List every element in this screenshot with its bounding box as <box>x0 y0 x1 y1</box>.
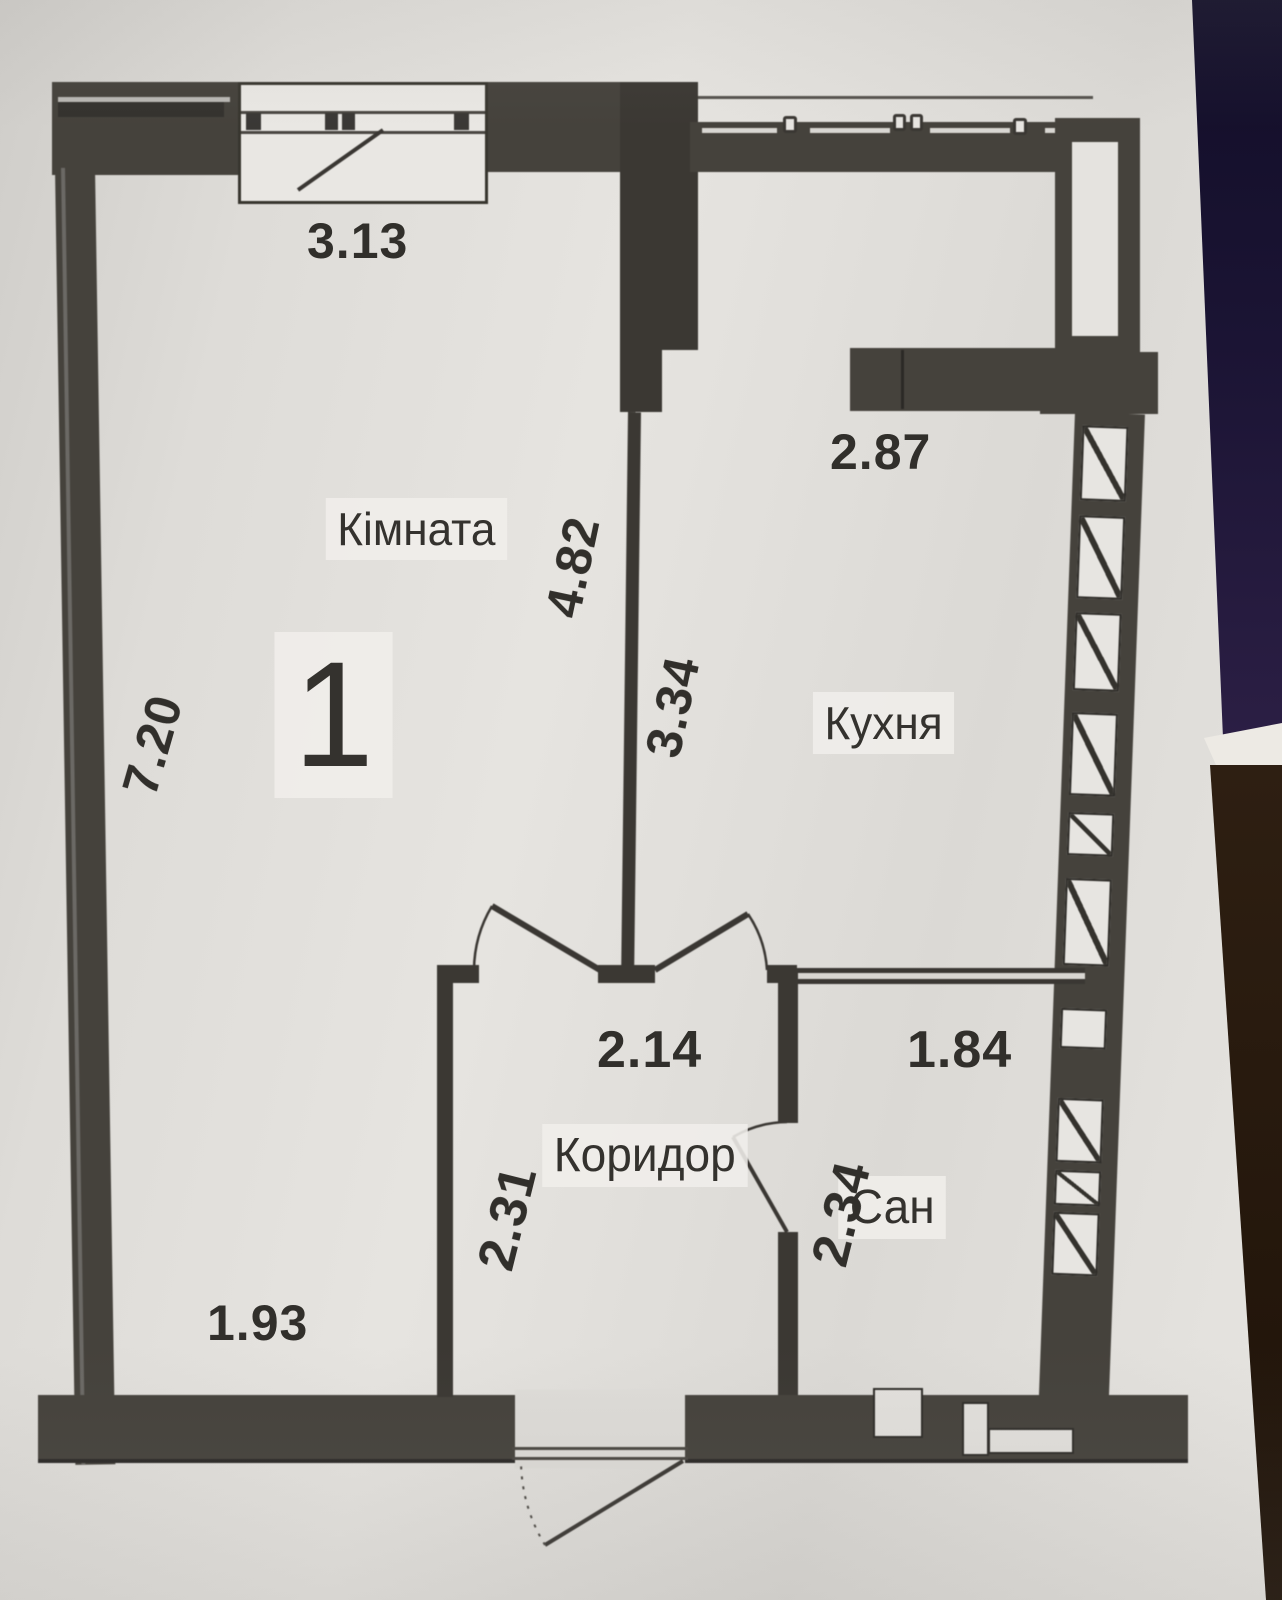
vent-window <box>1069 712 1118 797</box>
corridor-top-wall-left <box>437 965 479 983</box>
room-label-koridor: Коридор <box>542 1124 747 1187</box>
room-label-kuhnya: Кухня <box>813 692 954 754</box>
glazing-line <box>930 128 1010 133</box>
window-latch <box>246 113 261 130</box>
kitchen-window-outer-line <box>698 96 1093 99</box>
entrance-door-leaf <box>545 1461 683 1545</box>
shaft-opening <box>1060 1008 1107 1050</box>
kitchen-door-arc <box>748 914 767 970</box>
vent-window <box>1063 878 1112 967</box>
room-door-leaf <box>492 906 600 970</box>
wall-left-outer <box>55 167 115 1464</box>
dim-window-top: 3.13 <box>307 212 408 270</box>
shaft-cutout-slot-h <box>988 1428 1074 1454</box>
wall-top-left-stripe <box>58 102 224 117</box>
entrance-door-arc <box>521 1461 545 1545</box>
room-label-kimnata: Кімната <box>326 498 507 560</box>
dim-kitchen-top: 2.87 <box>830 423 931 481</box>
vent-circle <box>893 114 906 131</box>
vent-window <box>1076 515 1125 600</box>
dim-corridor-width: 2.14 <box>597 1020 702 1080</box>
wall-right-outer <box>1039 412 1145 1402</box>
floor-plan <box>0 0 1282 1600</box>
vent-window <box>1056 1098 1104 1164</box>
wall-room-kitchen <box>621 412 641 977</box>
wall-corridor-bathroom-upper <box>778 968 798 1123</box>
shaft-cutout-slot <box>962 1402 989 1456</box>
entrance-threshold-line <box>512 1457 688 1460</box>
vent-circle <box>1013 118 1027 135</box>
apartment-number: 1 <box>274 632 393 798</box>
vent-window <box>1080 425 1129 502</box>
wall-bottom <box>38 1395 1188 1463</box>
kitchen-wall-bar-seam <box>901 350 904 409</box>
vent-window <box>1073 612 1122 692</box>
kitchen-wall-bar <box>850 348 1066 411</box>
dim-bathroom-width: 1.84 <box>907 1020 1012 1080</box>
window-latch <box>454 113 469 130</box>
window-frame-line <box>241 111 485 114</box>
column-room-kitchen-step <box>620 350 662 412</box>
balcony-window <box>238 82 488 204</box>
vent-circle <box>783 116 797 133</box>
window-latch <box>342 113 355 130</box>
vent-window <box>1067 812 1115 857</box>
column-room-kitchen <box>620 82 698 350</box>
shaft-column-inner <box>1072 142 1118 336</box>
vent-window <box>1051 1212 1099 1277</box>
glazing-line <box>810 128 890 133</box>
room-door-arc <box>474 906 492 970</box>
vent-circle <box>910 114 923 131</box>
window-latch <box>325 113 338 130</box>
wall-top-left <box>52 82 238 175</box>
wall-corridor-bathroom-lower <box>778 1232 798 1395</box>
glazing-line <box>702 128 777 133</box>
kitchen-door-leaf <box>655 914 748 970</box>
shaft-cutout-square <box>873 1388 923 1438</box>
block-under-loop <box>1040 352 1158 414</box>
kitchen-window-wall <box>690 122 1092 172</box>
wall-left-seam <box>61 168 85 1465</box>
entrance-threshold-line <box>512 1447 688 1450</box>
bathroom-top-wall <box>795 968 1085 984</box>
wall-room-corridor <box>437 965 453 1397</box>
dim-room-bottom: 1.93 <box>207 1294 308 1352</box>
floor-plan-photo: 3.13 2.87 Кімната 4.82 3.34 Кухня 1 7.20… <box>0 0 1282 1600</box>
window-frame-line <box>241 131 485 134</box>
vent-window <box>1054 1170 1101 1207</box>
corridor-top-wall-stub <box>598 965 655 983</box>
